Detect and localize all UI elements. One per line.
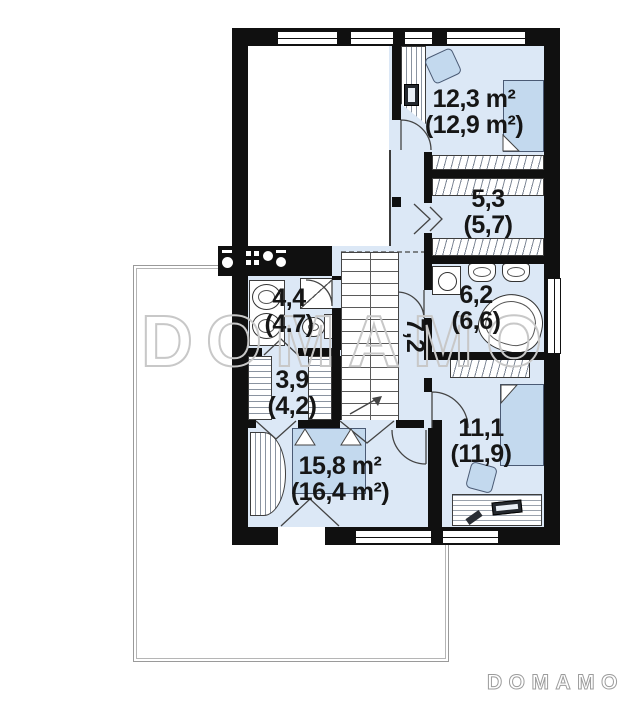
flue-icon bbox=[222, 257, 233, 268]
room-area: 15,8 m² bbox=[291, 453, 389, 479]
wardrobe-rail bbox=[450, 358, 530, 378]
wall bbox=[424, 256, 544, 264]
room-label-bedroom-lower-left: 15,8 m² (16,4 m²) bbox=[291, 453, 389, 505]
room-area: 3,9 bbox=[268, 367, 317, 393]
wardrobe-rail bbox=[432, 155, 544, 170]
flue-vent-icon bbox=[276, 250, 286, 253]
room-area-gross: (16,4 m²) bbox=[291, 479, 389, 505]
wall bbox=[424, 152, 432, 203]
window bbox=[446, 31, 526, 45]
flue-icon bbox=[263, 251, 273, 261]
sink bbox=[468, 263, 496, 282]
staircase bbox=[341, 252, 399, 428]
room-label-bedroom-upper: 12,3 m² (12,9 m²) bbox=[425, 86, 523, 138]
void-room bbox=[248, 46, 389, 246]
room-area: 7,2 bbox=[399, 318, 428, 353]
door-opening bbox=[256, 420, 298, 428]
window bbox=[442, 530, 499, 544]
room-label-bathroom-left: 4,4 (4.7) bbox=[265, 285, 314, 337]
door-opening bbox=[278, 527, 325, 545]
flue-vent-icon bbox=[254, 251, 259, 256]
room-area: 6,2 bbox=[452, 282, 501, 308]
window bbox=[547, 278, 561, 354]
flue-vent-icon bbox=[246, 260, 251, 265]
floor-plan: 12,3 m² (12,9 m²) 5,3 (5,7) 6,2 (6,6) 7,… bbox=[0, 0, 640, 702]
flue-vent-icon bbox=[222, 250, 232, 253]
laptop-icon bbox=[404, 84, 419, 106]
door-opening bbox=[332, 280, 341, 308]
door-opening bbox=[262, 348, 298, 356]
window bbox=[404, 31, 433, 45]
window bbox=[277, 31, 338, 45]
sink bbox=[502, 263, 530, 282]
wall bbox=[232, 28, 248, 545]
room-label-closet: 3,9 (4,2) bbox=[268, 367, 317, 419]
wall bbox=[424, 378, 432, 392]
wall bbox=[432, 170, 544, 178]
flue-vent-icon bbox=[246, 251, 251, 256]
room-area-gross: (6,6) bbox=[452, 308, 501, 334]
flue-icon bbox=[276, 257, 286, 267]
room-area-gross: (5,7) bbox=[464, 212, 513, 238]
room-area: 11,1 bbox=[451, 415, 512, 441]
flue-vent-icon bbox=[254, 260, 259, 265]
door-opening bbox=[424, 392, 432, 428]
wardrobe-rail bbox=[432, 238, 544, 256]
wall bbox=[389, 150, 391, 246]
room-label-bathroom-upper: 6,2 (6,6) bbox=[452, 282, 501, 334]
wall bbox=[392, 197, 401, 207]
wall bbox=[428, 420, 442, 527]
room-label-wardrobe: 5,3 (5,7) bbox=[464, 186, 513, 238]
door-opening bbox=[340, 420, 396, 428]
room-label-hallway: 7,2 bbox=[392, 304, 436, 366]
wall bbox=[392, 46, 401, 120]
chimney bbox=[218, 246, 332, 276]
room-area-gross: (4,2) bbox=[268, 393, 317, 419]
room-area: 5,3 bbox=[464, 186, 513, 212]
window bbox=[350, 31, 394, 45]
wall bbox=[424, 352, 544, 360]
wall bbox=[332, 356, 341, 428]
brand-logo: DOMAMO bbox=[487, 671, 624, 695]
room-area: 4,4 bbox=[265, 285, 314, 311]
room-area: 12,3 m² bbox=[425, 86, 523, 112]
room-area-gross: (4.7) bbox=[265, 311, 314, 337]
wall bbox=[424, 264, 432, 290]
room-label-bedroom-lower-right: 11,1 (11,9) bbox=[451, 415, 512, 467]
room-area-gross: (11,9) bbox=[451, 441, 512, 467]
window bbox=[355, 530, 432, 544]
room-area-gross: (12,9 m²) bbox=[425, 112, 523, 138]
